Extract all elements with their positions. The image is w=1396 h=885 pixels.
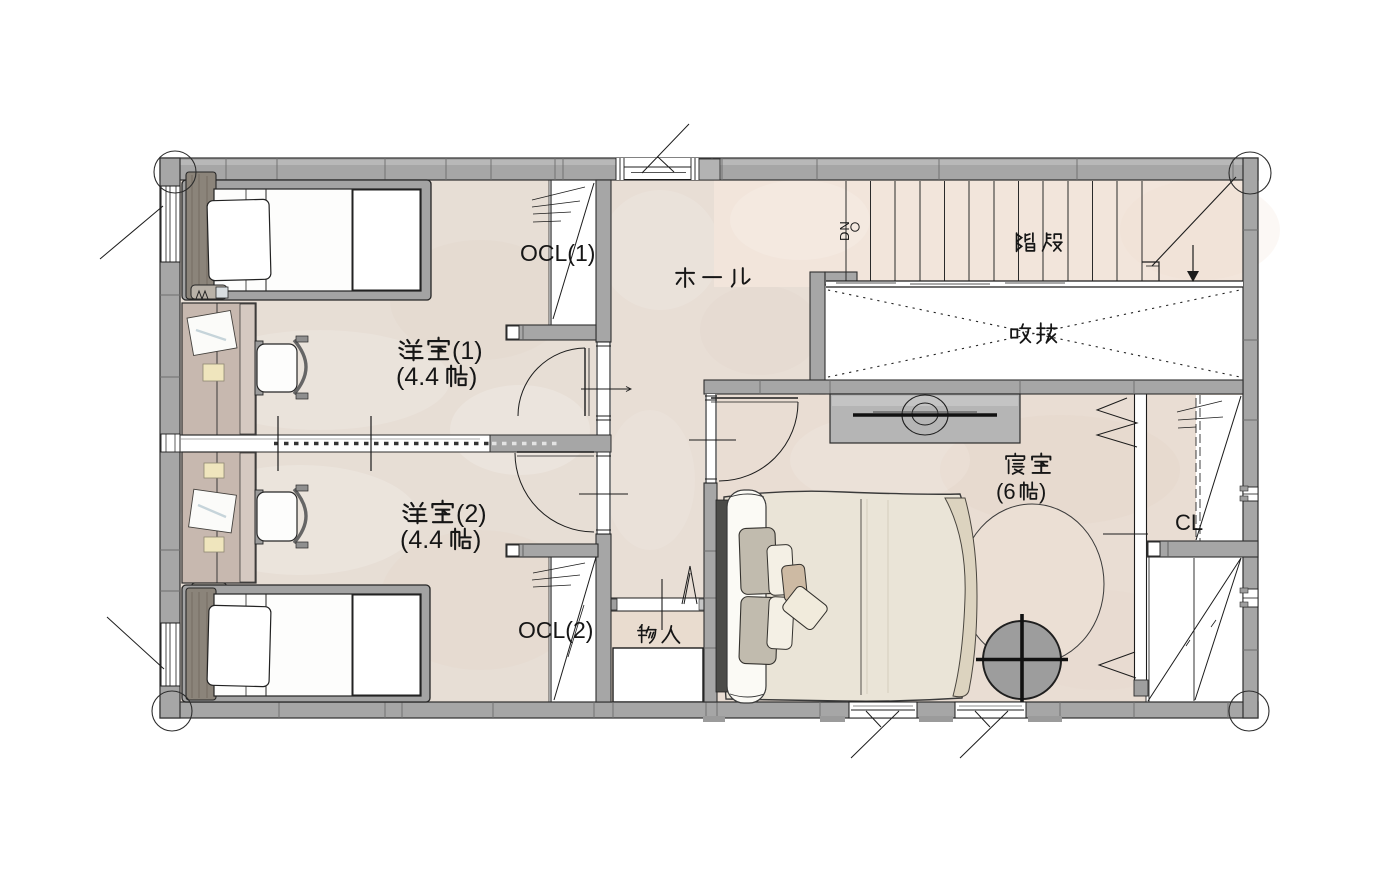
svg-text:(1): (1) [452,337,483,365]
svg-text:OCL(1): OCL(1) [520,240,595,266]
svg-text:DN: DN [837,220,852,241]
svg-text:CL: CL [1175,510,1203,535]
svg-text:(4.4: (4.4 [396,363,439,391]
svg-text:): ) [1039,479,1046,504]
svg-text:OCL(2): OCL(2) [518,617,593,643]
svg-text:(2): (2) [456,500,487,528]
svg-text:(4.4: (4.4 [400,526,443,554]
svg-text:): ) [473,526,481,554]
svg-text:): ) [469,363,477,391]
svg-text:(6: (6 [996,479,1016,504]
